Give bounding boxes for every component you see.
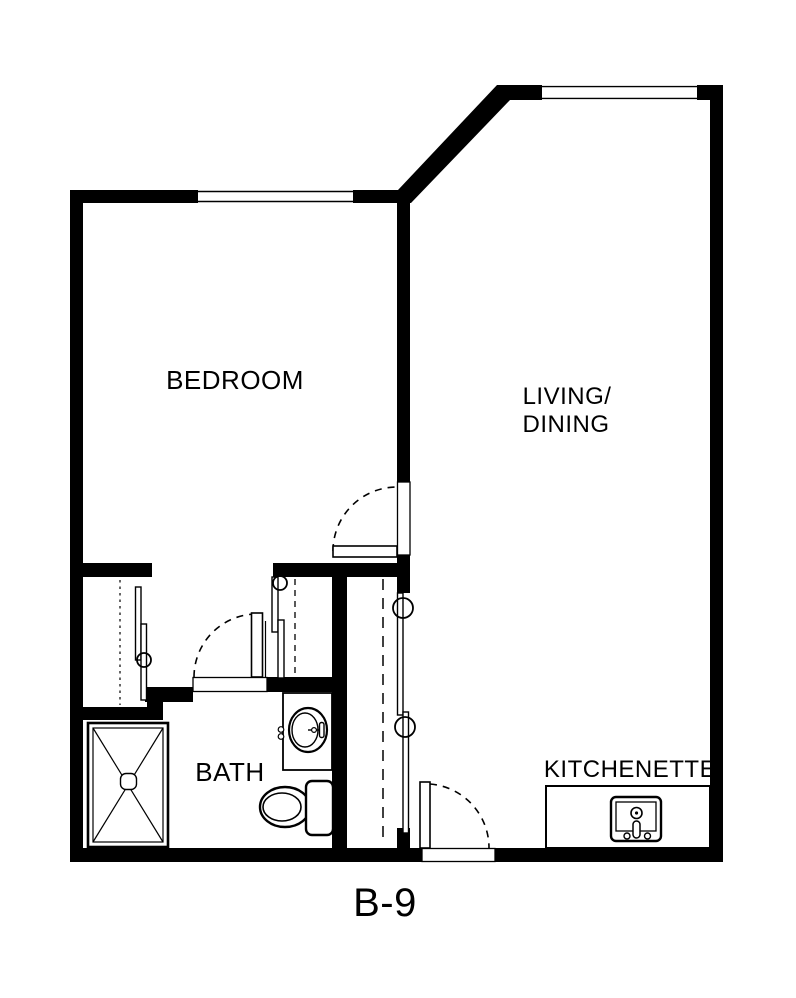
kitchenette-label: KITCHENETTE: [544, 756, 716, 783]
bath-label: BATH: [195, 757, 264, 787]
wall-left-closet-bottom: [70, 707, 163, 720]
sliding-panel: [136, 587, 142, 660]
unit-label: B-9: [353, 881, 417, 925]
wall-angled: [398, 85, 510, 203]
wall-outer-right: [710, 85, 723, 862]
sliding-panel: [278, 620, 284, 678]
bedroom-closet-left: [120, 580, 151, 705]
kitchenette-counter: [546, 786, 710, 848]
faucet-icon: [633, 821, 640, 838]
bedroom-door: [333, 487, 397, 557]
bedroom-passage-opening: [152, 562, 273, 578]
toilet-fixture: [260, 781, 333, 835]
faucet-knob-icon: [645, 833, 651, 839]
entry-closet: [383, 579, 415, 845]
faucet-icon: [320, 723, 325, 738]
living-window: [542, 85, 697, 100]
wall-outer-left: [70, 190, 83, 862]
wall-bath-east: [332, 563, 347, 848]
bath-door: [194, 613, 266, 677]
wall-bottom: [70, 848, 723, 862]
entry-doorway: [422, 849, 495, 862]
vanity-handle-icon: [278, 727, 284, 733]
vanity-handle-icon: [278, 734, 284, 740]
wall-bedroom-bottom-left: [70, 563, 152, 577]
bath-sink-fixture: [289, 708, 327, 752]
bath-vanity: [278, 693, 332, 770]
bedroom-closet-right: [272, 576, 295, 678]
wall-divider-upper: [397, 203, 410, 483]
sliding-panel: [398, 593, 404, 715]
living-label-line2: DINING: [523, 411, 610, 438]
sliding-panel: [403, 712, 409, 833]
toilet-tank: [306, 781, 333, 835]
bedroom-label: BEDROOM: [166, 365, 304, 395]
bedroom-window: [198, 190, 353, 203]
floor-plan-drawing: BEDROOM LIVING/ DINING BATH KITCHENETTE …: [0, 0, 796, 998]
bath-doorway: [193, 678, 267, 692]
floor-plan-page: BEDROOM LIVING/ DINING BATH KITCHENETTE …: [0, 0, 796, 998]
faucet-knob-icon: [624, 833, 630, 839]
wall-bath-top-right: [267, 677, 332, 692]
shower-fixture: [88, 723, 168, 847]
bedroom-doorway: [398, 482, 411, 555]
sliding-panel: [141, 624, 147, 700]
living-label-line1: LIVING/: [523, 383, 612, 410]
entry-door: [420, 782, 489, 848]
kitchenette-sink-fixture: [611, 797, 661, 841]
shower-drain-icon: [121, 774, 137, 790]
